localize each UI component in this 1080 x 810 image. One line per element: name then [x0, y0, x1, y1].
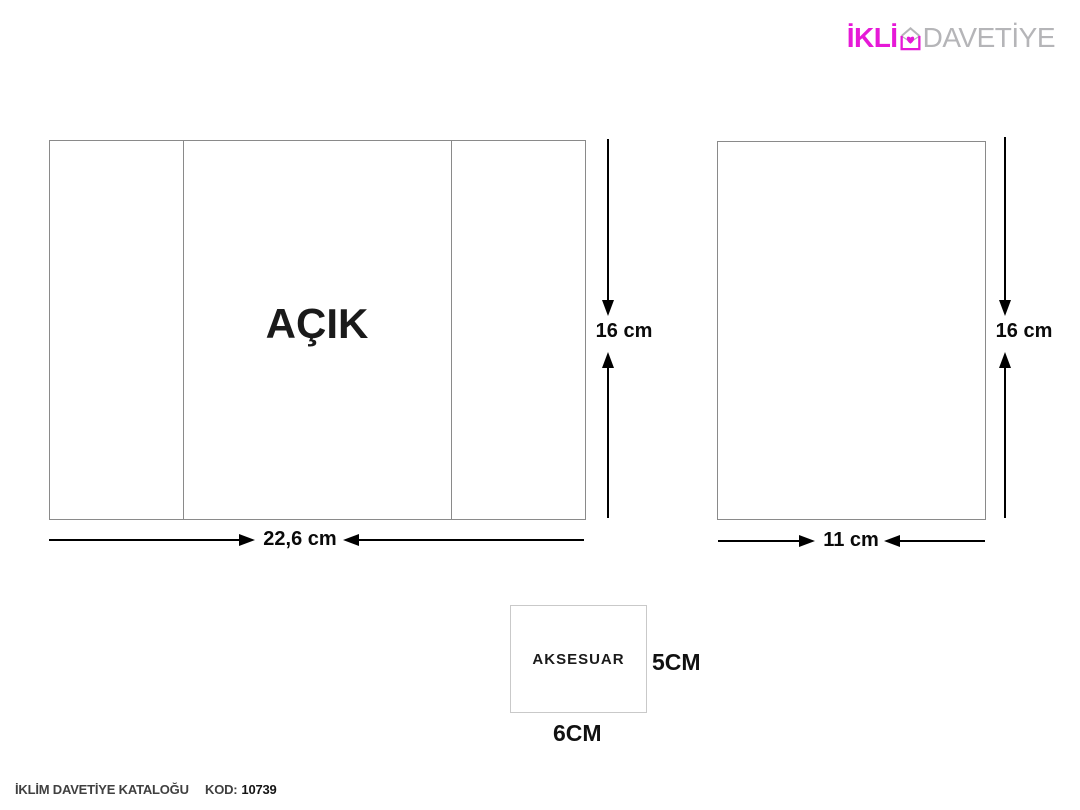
open-card-height-line-bottom [607, 368, 609, 518]
catalog-title: İKLİM DAVETİYE KATALOĞU [15, 782, 189, 797]
open-card-width-line-right [359, 539, 584, 541]
envelope-height-line-top [1004, 137, 1006, 300]
envelope-height-label: 16 cm [988, 320, 1060, 343]
arrowhead-right-icon [239, 534, 255, 546]
accessory-label: AKSESUAR [532, 651, 624, 668]
logo-text-iklim: İKLİ [847, 24, 898, 52]
envelope-width-line-left [718, 540, 799, 542]
arrowhead-up-icon [999, 352, 1011, 368]
logo-text-davetiye: DAVETİYE [923, 24, 1055, 52]
arrowhead-down-icon [999, 300, 1011, 316]
envelope-height-line-bottom [1004, 368, 1006, 518]
fold-line-right [451, 141, 452, 519]
envelope-outline [717, 141, 986, 520]
envelope-width-label: 11 cm [822, 529, 880, 552]
arrowhead-up-icon [602, 352, 614, 368]
code-label: KOD: [205, 782, 237, 797]
open-card-width-line-left [49, 539, 239, 541]
catalog-spec-page: İKLİ M DAVETİYE AÇIK 16 cm 22,6 cm 16 cm… [0, 0, 1080, 810]
arrowhead-down-icon [602, 300, 614, 316]
code-value: 10739 [241, 782, 276, 797]
accessory-height-label: 5CM [652, 649, 701, 676]
envelope-width-line-right [900, 540, 985, 542]
open-card-label: AÇIK [183, 300, 451, 348]
arrowhead-right-icon [799, 535, 815, 547]
arrowhead-left-icon [884, 535, 900, 547]
open-card-height-line-top [607, 139, 609, 300]
open-card-width-label: 22,6 cm [260, 528, 340, 551]
brand-logo: İKLİ M DAVETİYE [847, 24, 1055, 52]
product-code: KOD:10739 [205, 782, 277, 797]
accessory-width-label: 6CM [553, 720, 602, 747]
arrowhead-left-icon [343, 534, 359, 546]
open-card-height-label: 16 cm [588, 320, 660, 343]
envelope-heart-m-icon [899, 25, 922, 52]
accessory-outline: AKSESUAR [510, 605, 647, 713]
